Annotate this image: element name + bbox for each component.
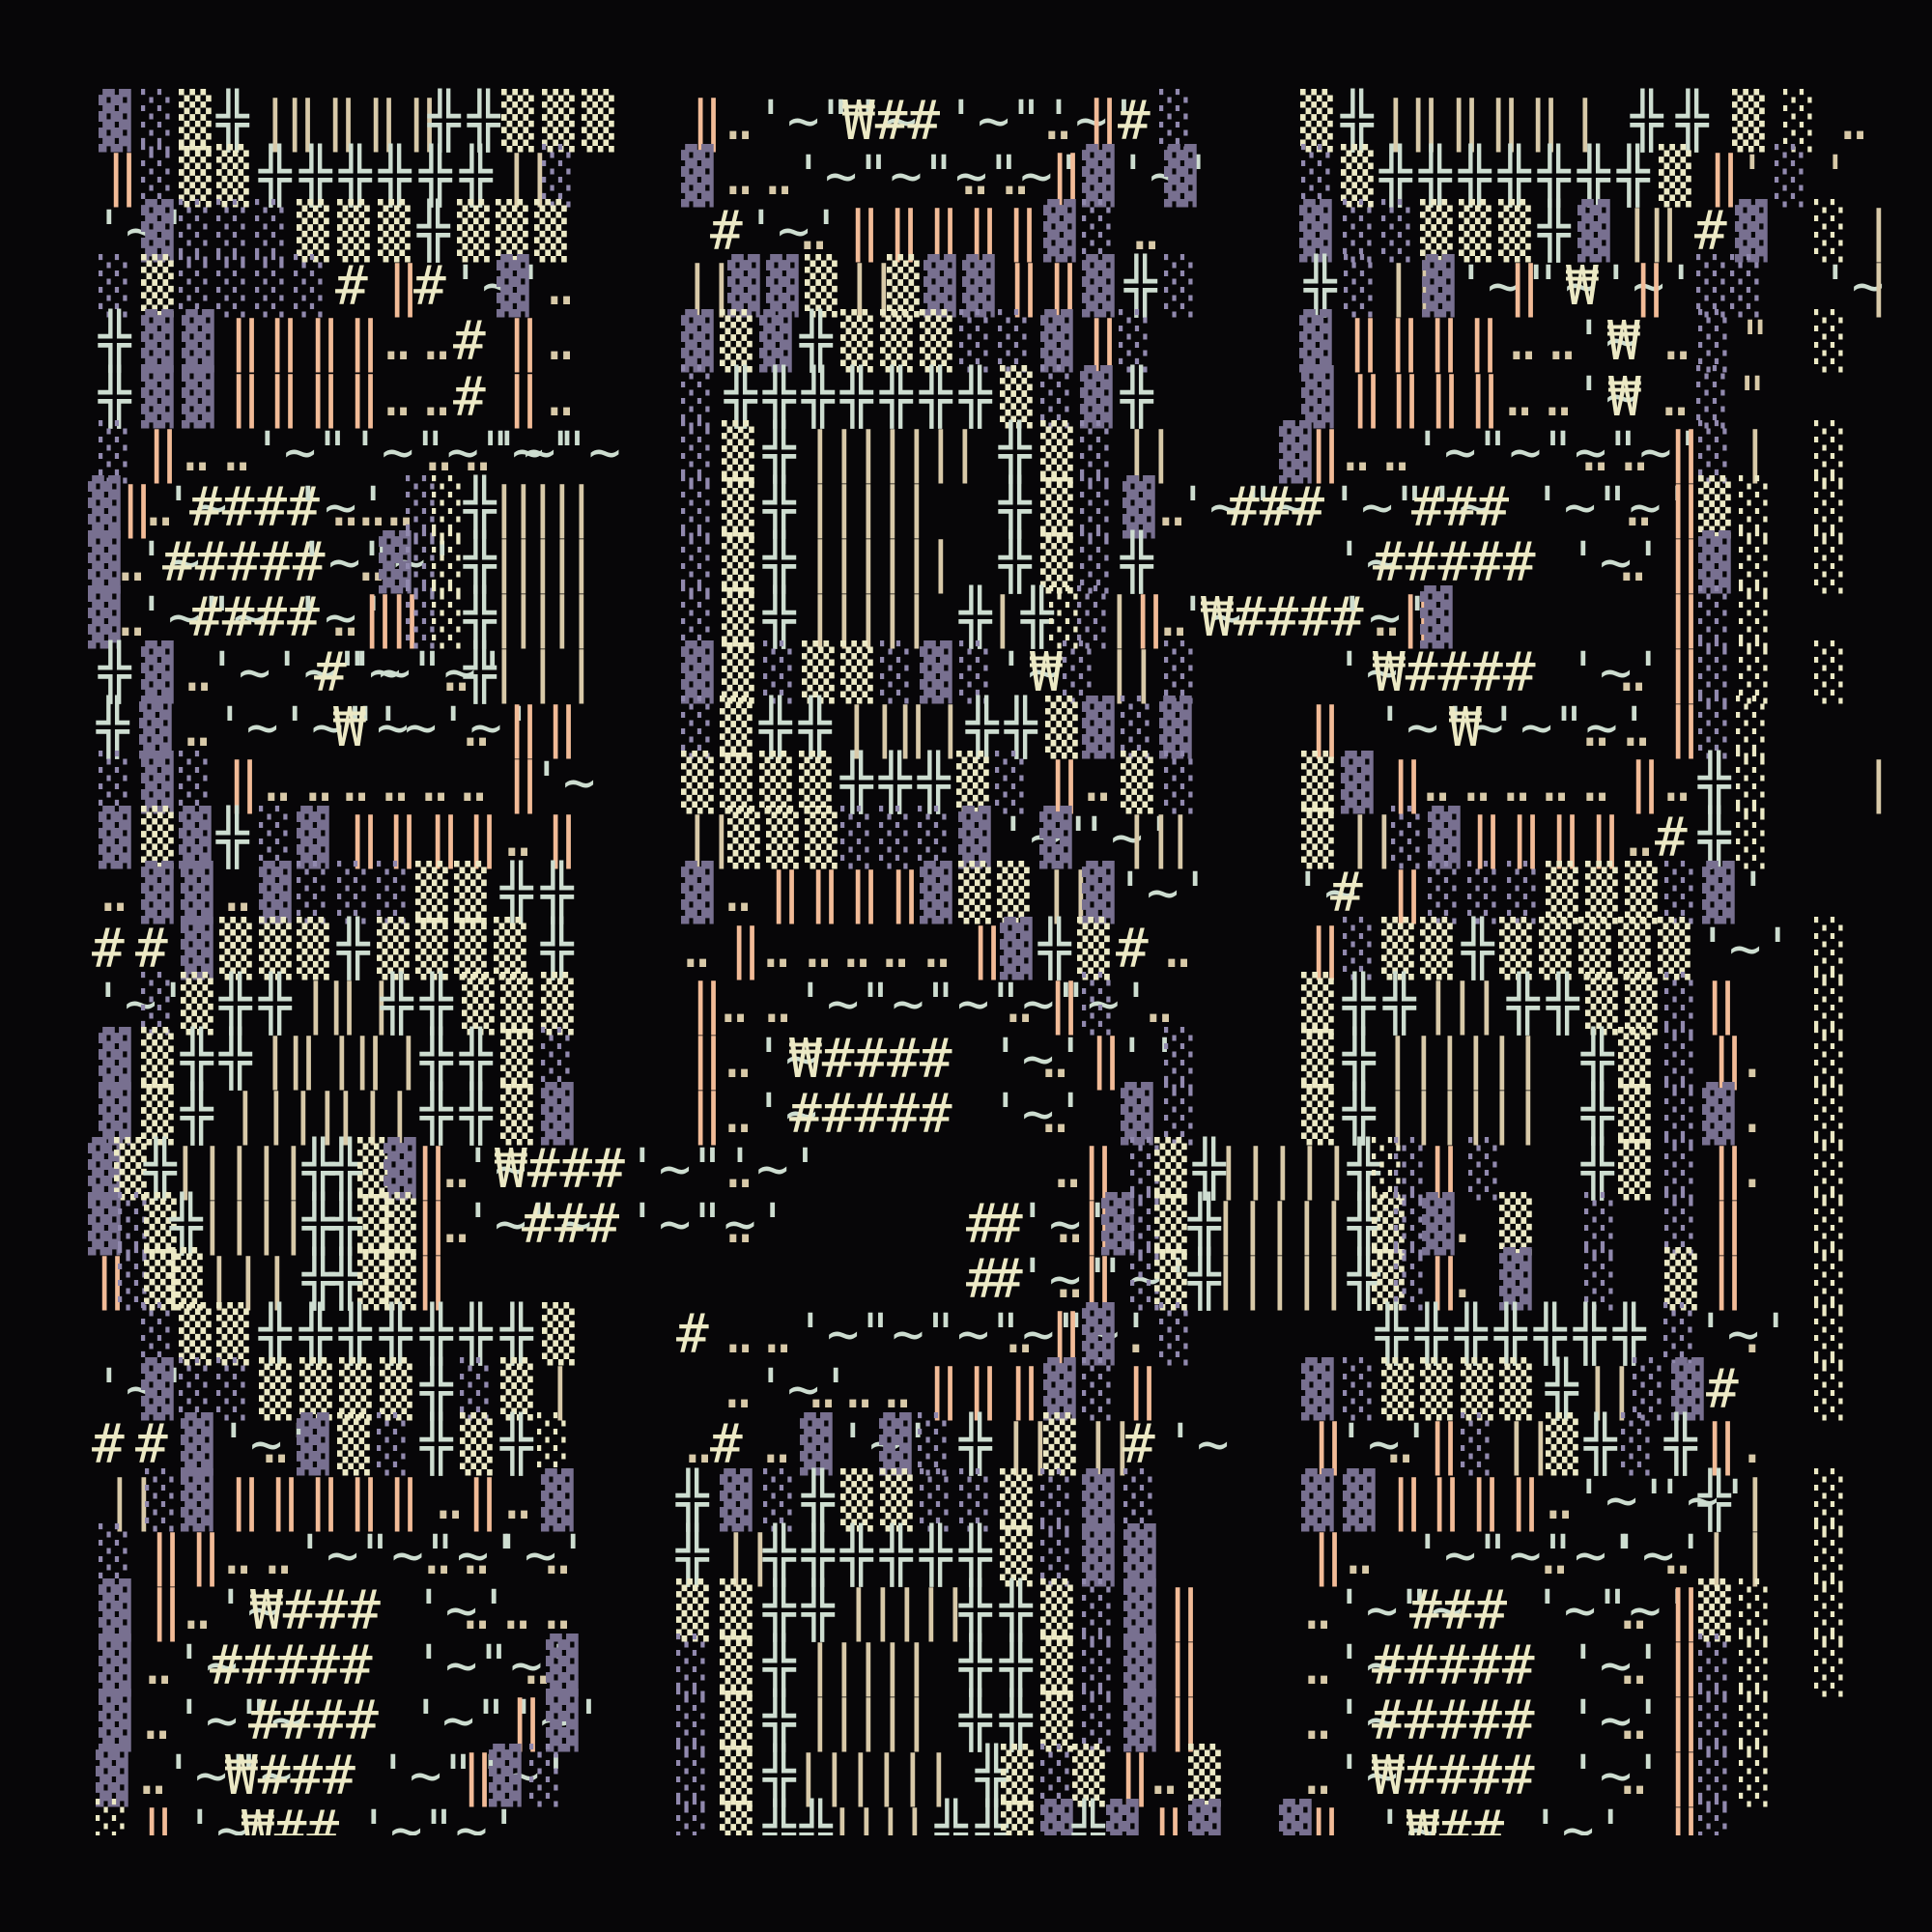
glyph-token: |	[1318, 1252, 1350, 1307]
glyph-token: ..	[1150, 480, 1174, 535]
glyph-token: ▓	[489, 1748, 522, 1804]
glyph-token: ╬	[428, 94, 461, 149]
glyph-token: ‖	[1168, 1638, 1201, 1693]
glyph-token: ░	[1507, 866, 1540, 921]
glyph-token: ..	[136, 1638, 160, 1693]
glyph-token: ░	[1664, 866, 1697, 921]
glyph-token: ╬	[1121, 370, 1153, 425]
glyph-token: ▒	[1001, 1748, 1034, 1804]
glyph-token: ╬	[880, 1528, 913, 1583]
glyph-token: ▒	[1499, 1362, 1532, 1417]
glyph-token: |	[544, 1362, 577, 1417]
glyph-token: ..	[375, 314, 399, 369]
glyph-token: ₩	[1566, 259, 1599, 314]
glyph-token: ░	[1664, 977, 1697, 1032]
glyph-token: |	[900, 1693, 933, 1748]
glyph-token: ╬	[1383, 977, 1416, 1032]
glyph-token: ‖	[1634, 259, 1666, 314]
glyph-token: ..	[1033, 1087, 1057, 1142]
glyph-token: ‖	[1168, 1693, 1201, 1748]
glyph-token: ‖	[510, 1693, 543, 1748]
glyph-token: ░	[216, 1362, 249, 1417]
glyph-token: ‖	[507, 314, 540, 369]
glyph-token: |	[900, 480, 933, 535]
ascii-art-row: ▓▒╬╬|‖|‖|╬╬▒░‖..'~₩####'~'..‖''░▒╬||||||…	[0, 1032, 1932, 1090]
glyph-token: ╬	[959, 1638, 992, 1693]
glyph-token: ░	[1814, 922, 1847, 977]
glyph-token: |	[1862, 204, 1895, 259]
glyph-token: ╬	[99, 370, 131, 425]
glyph-token: ░	[1391, 810, 1424, 866]
glyph-token: ░	[99, 259, 131, 314]
glyph-token: ₩####	[789, 1032, 952, 1087]
glyph-token: ▓	[182, 370, 214, 425]
glyph-token: ▓	[1039, 810, 1072, 866]
glyph-token: ‖	[327, 977, 359, 1032]
glyph-token: ▓	[681, 866, 714, 921]
glyph-token: ▒	[496, 204, 528, 259]
glyph-token: ‖	[428, 810, 461, 866]
glyph-token: ▓	[1420, 590, 1453, 645]
glyph-token: ░	[1040, 1473, 1073, 1528]
glyph-token: ░	[1696, 259, 1729, 314]
glyph-token: |	[934, 700, 967, 755]
glyph-token: ░	[1739, 535, 1772, 590]
glyph-token: ₩	[1608, 370, 1641, 425]
glyph-token: ▒	[722, 645, 754, 700]
glyph-token: ▒	[720, 1693, 753, 1748]
glyph-token: ░	[1814, 1032, 1847, 1087]
glyph-token: ░	[141, 149, 174, 204]
glyph-token: ###	[1411, 480, 1509, 535]
glyph-token: ▒	[454, 922, 487, 977]
glyph-token: ‖	[967, 204, 1000, 259]
glyph-token: ..	[716, 1362, 740, 1417]
glyph-token: ▓	[1577, 204, 1610, 259]
glyph-token: ..	[323, 480, 347, 535]
glyph-token: ▒	[494, 922, 526, 977]
glyph-token: ╬	[379, 149, 412, 204]
glyph-token: #	[314, 645, 347, 700]
glyph-token: ▓	[139, 700, 172, 755]
glyph-token: ‖	[927, 204, 960, 259]
glyph-token: ▓	[962, 259, 995, 314]
glyph-token: ▓	[181, 866, 213, 921]
glyph-token: ░	[676, 1693, 709, 1748]
glyph-token: ░	[879, 810, 912, 866]
glyph-token: ▒	[1618, 1087, 1651, 1142]
glyph-token: ▓	[1082, 1473, 1115, 1528]
glyph-token: ▒	[582, 94, 614, 149]
glyph-token: ▒	[956, 755, 989, 810]
glyph-token: ▒	[887, 259, 920, 314]
glyph-token: ╬	[417, 204, 450, 259]
glyph-token: ╬	[259, 1307, 292, 1362]
glyph-token: ░	[1664, 1197, 1697, 1252]
glyph-token: ..	[1617, 810, 1641, 866]
glyph-token: ‖	[546, 810, 579, 866]
glyph-token: ▓	[1040, 1804, 1073, 1835]
glyph-token: ‖	[1668, 425, 1701, 480]
glyph-token: ░	[1164, 645, 1197, 700]
glyph-token: ░	[1698, 1638, 1731, 1693]
glyph-token: ▒	[1546, 866, 1578, 921]
glyph-token: ░	[1814, 480, 1847, 535]
glyph-token: ▒	[384, 1252, 416, 1307]
glyph-token: ╬	[802, 370, 835, 425]
glyph-token: ░	[1584, 1197, 1617, 1252]
glyph-token: ╬	[763, 1638, 796, 1693]
glyph-token: ▓	[958, 810, 991, 866]
glyph-token: ╬	[1304, 259, 1337, 314]
glyph-token: ..	[1612, 425, 1636, 480]
glyph-token: ..	[676, 1417, 700, 1472]
glyph-token: ₩	[1449, 700, 1482, 755]
glyph-token: ░	[681, 700, 714, 755]
glyph-token: ‖	[1408, 94, 1441, 149]
glyph-token: ▒	[722, 425, 754, 480]
ascii-art-row: ‖░▒▒╬╬╬╬╬╬||░▓....'~"~"~"~'....‖▓'~'▓░▒╬…	[0, 149, 1932, 207]
glyph-token: ╬	[763, 1693, 796, 1748]
glyph-token: ▓	[182, 314, 214, 369]
glyph-token: ▒	[880, 1473, 913, 1528]
glyph-token: ╬	[1584, 1417, 1617, 1472]
glyph-token: ▒	[457, 204, 490, 259]
glyph-token: ‖	[1489, 94, 1521, 149]
glyph-token: ╬	[420, 1417, 453, 1472]
glyph-token: ‖	[1309, 1804, 1342, 1835]
glyph-token: ▒	[840, 314, 873, 369]
glyph-token: ▓	[546, 1638, 579, 1693]
glyph-token: ..	[323, 590, 347, 645]
glyph-token: ‖	[809, 866, 841, 921]
glyph-token: ‖	[308, 314, 341, 369]
glyph-token: ░	[96, 1804, 128, 1835]
glyph-token: |	[924, 535, 957, 590]
glyph-token: ▓	[141, 645, 174, 700]
glyph-token: ..	[1832, 94, 1856, 149]
glyph-token: ╬	[918, 755, 951, 810]
glyph-token: |	[1862, 755, 1895, 810]
glyph-token: #	[135, 922, 168, 977]
glyph-token: ░	[1730, 259, 1763, 314]
glyph-token: ▓	[1422, 259, 1455, 314]
glyph-token: ▓	[1101, 1197, 1134, 1252]
glyph-token: |	[565, 535, 598, 590]
ascii-art-row: ░▓░‖............‖'~▒▒▒▒╬╬╬▒░‖..▒░▒▓‖....…	[0, 755, 1932, 813]
glyph-token: ▒	[1188, 1748, 1221, 1804]
glyph-token: ‖	[546, 700, 579, 755]
ascii-art-row: ╬▓▓‖‖‖‖....#‖..▓▒▓╬▒▒▒░░▓‖░▓‖‖‖‖....'~₩.…	[0, 314, 1932, 372]
glyph-token: ▒	[179, 94, 212, 149]
glyph-token: ╬	[763, 370, 796, 425]
glyph-token: ▓	[1428, 810, 1461, 866]
glyph-token: ░	[1814, 1087, 1847, 1142]
glyph-token: ░	[542, 149, 575, 204]
glyph-token: ..	[535, 1528, 559, 1583]
glyph-token: ▒	[454, 866, 487, 921]
glyph-token: ░	[1584, 1252, 1617, 1307]
glyph-token: ..	[1455, 755, 1479, 810]
glyph-token: ▓	[1123, 1528, 1156, 1583]
glyph-token: ‖	[927, 1362, 960, 1417]
glyph-token: ░	[1739, 590, 1772, 645]
glyph-token: "	[1739, 314, 1772, 369]
glyph-token: ..	[538, 370, 562, 425]
glyph-token: ..	[1337, 1528, 1361, 1583]
glyph-token: #####	[210, 1638, 373, 1693]
glyph-token: ╬	[1341, 94, 1374, 149]
glyph-token: |	[229, 1087, 262, 1142]
glyph-token: ‖	[1668, 1638, 1701, 1693]
glyph-token: ▓	[727, 259, 760, 314]
glyph-token: ░	[681, 425, 714, 480]
glyph-token: ..	[716, 1087, 740, 1142]
glyph-token: ‖	[888, 204, 921, 259]
glyph-token: ▓	[99, 1583, 131, 1638]
glyph-token: ▓	[1082, 149, 1115, 204]
glyph-token: |	[1739, 1528, 1772, 1583]
glyph-token: ▒	[720, 700, 753, 755]
glyph-token: ‖	[769, 866, 802, 921]
glyph-token: ░	[1164, 755, 1197, 810]
glyph-token: ‖	[1510, 810, 1543, 866]
glyph-token: ▒	[1585, 977, 1618, 1032]
glyph-token: ‖	[268, 314, 300, 369]
glyph-token: ╬	[1462, 922, 1494, 977]
glyph-token: ░	[681, 370, 714, 425]
glyph-token: ╬	[1494, 1307, 1527, 1362]
glyph-token: ▓	[181, 922, 213, 977]
glyph-token: ▒	[1539, 922, 1572, 977]
glyph-token: ‖	[467, 1473, 499, 1528]
glyph-token: ░	[529, 1748, 562, 1804]
glyph-token: ╬	[99, 645, 131, 700]
glyph-token: |	[261, 1252, 294, 1307]
glyph-token: ╬	[1343, 1032, 1376, 1087]
glyph-token: ..	[791, 204, 815, 259]
glyph-token: ▒	[299, 1362, 332, 1417]
glyph-token: ..	[253, 1417, 277, 1472]
glyph-token: ▒	[141, 810, 174, 866]
ascii-art-row: ▓▒▓╬░▓‖‖‖‖..‖||▒▒▒░░░▓'~'▓'~'|||▒||░▓‖‖‖…	[0, 810, 1932, 868]
glyph-token: ..	[1496, 370, 1520, 425]
glyph-token: ╬	[1617, 149, 1650, 204]
glyph-token: #	[135, 1417, 168, 1472]
glyph-token: ▒	[259, 1362, 292, 1417]
glyph-token: ..	[414, 370, 439, 425]
glyph-token: ░	[1040, 1748, 1073, 1804]
glyph-token: ▒	[1461, 1362, 1493, 1417]
glyph-token: ▒	[1499, 1197, 1532, 1252]
glyph-token: ▒	[1154, 1252, 1187, 1307]
ascii-art-row: ░‖'~₩##'~"~'..░▒╬╬||||╬╬▒▓╬▓‖▓▓‖'~₩##'~'…	[0, 1804, 1932, 1835]
glyph-token: ▓	[99, 94, 131, 149]
glyph-token: ‖	[1668, 645, 1701, 700]
glyph-token: ▒	[1664, 1252, 1697, 1307]
glyph-token: ╬	[1664, 1417, 1697, 1472]
glyph-token: ▒	[720, 314, 753, 369]
glyph-token: ..	[717, 1307, 741, 1362]
glyph-token: ▒	[179, 1307, 212, 1362]
glyph-token: ▓	[920, 866, 952, 921]
glyph-token: ..	[434, 645, 458, 700]
glyph-token: ‖	[1430, 1473, 1463, 1528]
glyph-token: ..	[952, 149, 977, 204]
glyph-token: ▒	[1301, 755, 1334, 810]
glyph-token: ..	[1295, 1748, 1320, 1804]
glyph-token: ▓	[99, 1693, 131, 1748]
glyph-token: ▓	[1702, 1087, 1735, 1142]
glyph-token: ╬	[299, 149, 332, 204]
glyph-token: ▓	[541, 1473, 574, 1528]
glyph-token: ░	[1082, 1638, 1115, 1693]
glyph-token: '	[1819, 149, 1852, 204]
glyph-token: ░	[141, 94, 174, 149]
glyph-token: ░	[676, 1638, 709, 1693]
glyph-token: ▒	[1040, 1693, 1073, 1748]
glyph-token: ╬	[799, 700, 832, 755]
glyph-token: ░	[1814, 1583, 1847, 1638]
glyph-token: ▓	[181, 1417, 213, 1472]
glyph-token: ░	[432, 590, 465, 645]
glyph-token: ▒	[337, 1417, 370, 1472]
glyph-token: ░	[1394, 1142, 1427, 1197]
glyph-token: ╬	[541, 922, 574, 977]
glyph-token: ░	[1164, 1087, 1197, 1142]
glyph-token: ‖	[895, 700, 928, 755]
glyph-token: ╬	[1698, 1473, 1731, 1528]
glyph-token: ..	[1616, 480, 1640, 535]
glyph-token: ░	[1040, 1528, 1073, 1583]
glyph-token: ..	[1537, 1473, 1561, 1528]
glyph-token: ₩	[1607, 314, 1640, 369]
glyph-token: ░	[1814, 645, 1847, 700]
glyph-token: ▒	[1698, 480, 1731, 535]
glyph-token: ░	[1775, 149, 1807, 204]
glyph-token: ‖	[848, 866, 881, 921]
glyph-token: ╬	[1534, 1307, 1567, 1362]
glyph-token: ..	[415, 1528, 440, 1583]
glyph-token: ▒	[500, 977, 533, 1032]
ascii-art-row: ▓░▒╬||||╬╬▒▒‖..'~"~###'~"~'..##'~'..‖▓░▒…	[0, 1197, 1932, 1255]
glyph-token: ₩####	[1372, 1748, 1535, 1804]
glyph-token: ╬	[1072, 1804, 1105, 1835]
glyph-token: ╬	[763, 535, 796, 590]
glyph-token: ╬	[259, 977, 292, 1032]
glyph-token: '~	[1164, 1417, 1229, 1472]
glyph-token: ..	[1047, 1197, 1071, 1252]
glyph-token: ░	[216, 204, 249, 259]
glyph-token: ╬	[219, 977, 252, 1032]
glyph-token: ‖	[1712, 1252, 1745, 1307]
glyph-token: ▓	[297, 810, 329, 866]
glyph-token: ▒	[541, 977, 574, 1032]
glyph-token: ╬	[460, 1087, 493, 1142]
glyph-token: ▓	[923, 259, 956, 314]
glyph-token: ₩	[1030, 645, 1063, 700]
glyph-token: ..	[255, 755, 279, 810]
glyph-token: ░	[1698, 1748, 1731, 1804]
glyph-token: |	[565, 590, 598, 645]
glyph-token: ..	[1611, 1748, 1635, 1804]
glyph-token: ▓	[1671, 1362, 1704, 1417]
glyph-token: ░	[1633, 1362, 1665, 1417]
glyph-token: ‖	[1309, 700, 1342, 755]
glyph-token: ░	[216, 259, 249, 314]
glyph-token: ▓	[1082, 1307, 1115, 1362]
glyph-token: ‖	[1048, 977, 1081, 1032]
glyph-token: ╬	[1000, 1638, 1033, 1693]
glyph-token: ..	[174, 425, 198, 480]
glyph-token: ▒	[141, 1032, 174, 1087]
glyph-token: ‖	[1050, 1307, 1083, 1362]
ascii-art-row: '~'░▒╬╬|‖|╬╬▒▒▒‖....'~"~"~"~"~'..‖░..▒╬╬…	[0, 977, 1932, 1035]
glyph-token: ..	[454, 700, 478, 755]
glyph-token: ..	[1155, 922, 1179, 977]
glyph-token: ▒	[1625, 866, 1658, 921]
glyph-token: ╬	[959, 1417, 992, 1472]
glyph-token: ░	[1814, 1528, 1847, 1583]
glyph-token: '~	[184, 1804, 248, 1835]
glyph-token: ..	[1500, 314, 1524, 369]
ascii-art-row: ▓..'~"~####'~"'~'‖▓░▒╬|||||╬╬▒░▓‖..'~###…	[0, 1693, 1932, 1751]
glyph-token: ▒	[722, 535, 754, 590]
glyph-token: |	[1103, 590, 1136, 645]
glyph-token: |	[1127, 645, 1160, 700]
glyph-token: ▒	[681, 755, 714, 810]
glyph-token: ░	[1739, 1583, 1772, 1638]
glyph-token: ╬	[181, 1087, 213, 1142]
glyph-token: ╬	[763, 1583, 796, 1638]
glyph-token: ▒	[1698, 1583, 1731, 1638]
glyph-token: ‖	[308, 370, 341, 425]
glyph-token: ░	[1739, 1638, 1772, 1693]
glyph-token: ░	[294, 259, 327, 314]
ascii-art-row: ▓..'~"~₩###'~"'~'‖▓░░▒╬||||||╬▒░▒‖..▒..'…	[0, 1748, 1932, 1806]
glyph-token: ╬	[1507, 977, 1540, 1032]
glyph-token: ‖	[1467, 314, 1500, 369]
glyph-token: ╬	[1538, 149, 1571, 204]
glyph-token: '~"~"~'	[294, 1528, 522, 1583]
ascii-art-row: ▓░▒╬|‖‖‖‖╬╬▒▒▒‖..'~"'~₩##'~"'~'..‖#░▒╬|‖…	[0, 94, 1932, 152]
glyph-token: ▒	[676, 1583, 709, 1638]
glyph-token: ₩###	[225, 1748, 355, 1804]
glyph-token: #	[676, 1307, 709, 1362]
glyph-token: ▒	[219, 922, 252, 977]
glyph-token: ▒	[339, 1362, 372, 1417]
glyph-token: ░	[995, 755, 1028, 810]
glyph-token: ░	[1343, 922, 1376, 977]
glyph-token: ╬	[1005, 700, 1037, 755]
glyph-token: ▒	[727, 810, 760, 866]
glyph-token: ▓	[1279, 425, 1312, 480]
glyph-token: ░	[676, 1804, 709, 1835]
glyph-token: ▓	[259, 866, 292, 921]
glyph-token: ░	[1696, 370, 1729, 425]
glyph-token: ▒	[1618, 1142, 1651, 1197]
glyph-token: ▒	[840, 645, 873, 700]
glyph-token: '~'	[1696, 922, 1794, 977]
glyph-token: |	[1512, 1032, 1545, 1087]
glyph-token: ▒	[1420, 1362, 1453, 1417]
glyph-token: ..	[1573, 425, 1597, 480]
glyph-token: ▓	[1040, 314, 1073, 369]
glyph-token: ░	[179, 204, 212, 259]
glyph-token: ▒	[1301, 1087, 1334, 1142]
glyph-token: ░	[998, 314, 1031, 369]
glyph-token: ░	[1428, 866, 1461, 921]
